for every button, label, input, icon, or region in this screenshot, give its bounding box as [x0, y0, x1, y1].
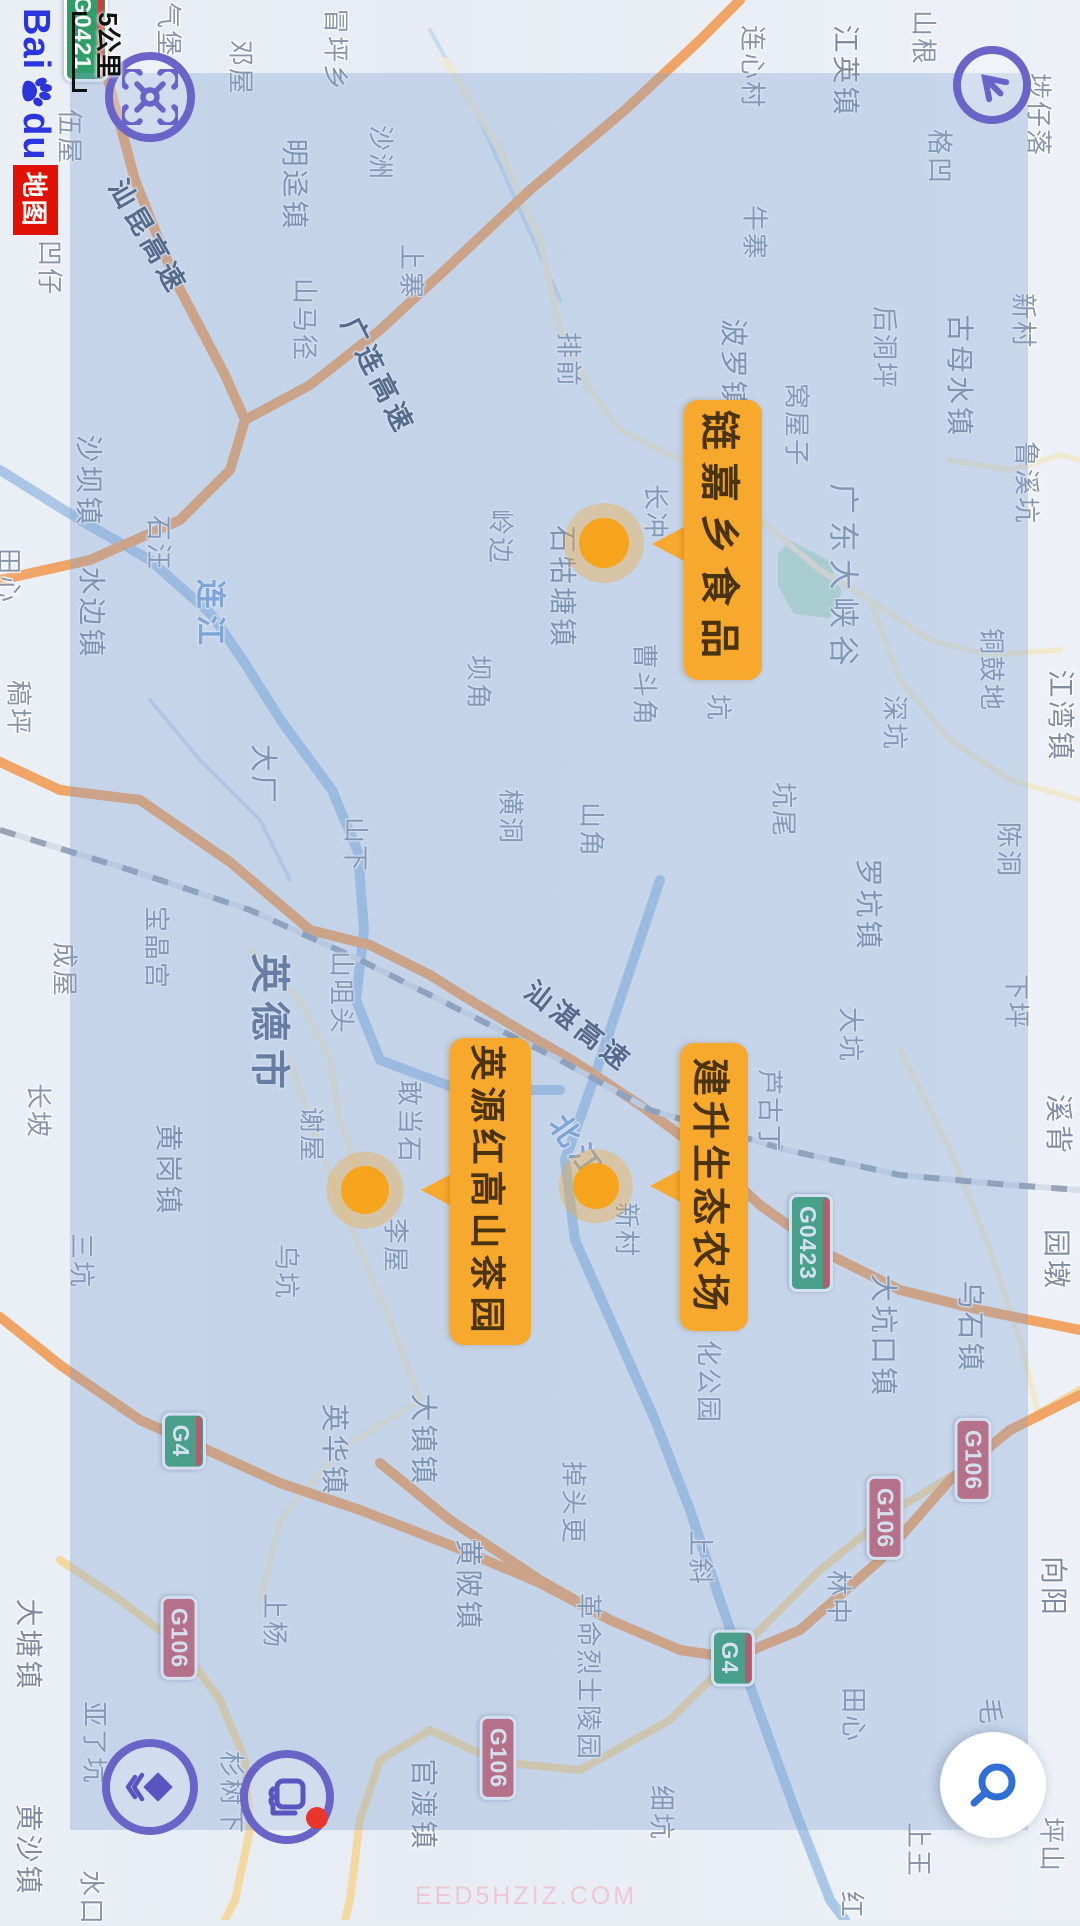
poi-callout-pointer: [650, 1169, 682, 1203]
logo-text-map: 地图: [13, 165, 58, 235]
poi-callout-pointer: [652, 527, 684, 561]
scale-bar: 5公里: [72, 12, 128, 92]
compass-button[interactable]: [953, 46, 1031, 124]
scale-label: 5公里: [91, 12, 128, 92]
notification-dot: [306, 1807, 328, 1829]
poi-callout-pointer: [421, 1173, 453, 1207]
search-icon: [963, 1755, 1023, 1815]
logo-text-du: du: [14, 112, 57, 160]
poi-callouts-layer: 链嘉乡食品英源红高山茶园建升生态农场: [0, 0, 1080, 1920]
layers-button[interactable]: [240, 1750, 334, 1844]
poi-marker[interactable]: [573, 1163, 619, 1209]
baidu-map-screen: { "app": { "brand": {"bai": "Bai", "du":…: [0, 0, 1080, 1920]
baidu-logo: Bai du 地图: [13, 8, 58, 235]
drone-icon: [122, 69, 178, 125]
watermark: EED5HZIZ.COM: [415, 1882, 637, 1911]
diamond-chevron-icon: [121, 1758, 179, 1816]
logo-text-bai: Bai: [14, 8, 57, 70]
poi-callout[interactable]: 链嘉乡食品: [684, 400, 762, 680]
poi-callout[interactable]: 建升生态农场: [680, 1043, 748, 1331]
poi-marker[interactable]: [341, 1166, 389, 1214]
paw-icon: [19, 74, 53, 108]
map-canvas[interactable]: 邓屋伍屋凹仔气堡冒坪乡沙洲山马径上寨排前牛寨连心村山根埗仔落格凹新村古母水镇后洞…: [0, 0, 1080, 1920]
poi-callout[interactable]: 英源红高山茶园: [450, 1038, 531, 1345]
search-button[interactable]: [940, 1732, 1046, 1838]
poi-marker[interactable]: [579, 518, 629, 568]
arrow-icon: [969, 62, 1015, 108]
scale-ruler: [72, 12, 87, 92]
diamond-chevron-button[interactable]: [102, 1739, 198, 1835]
